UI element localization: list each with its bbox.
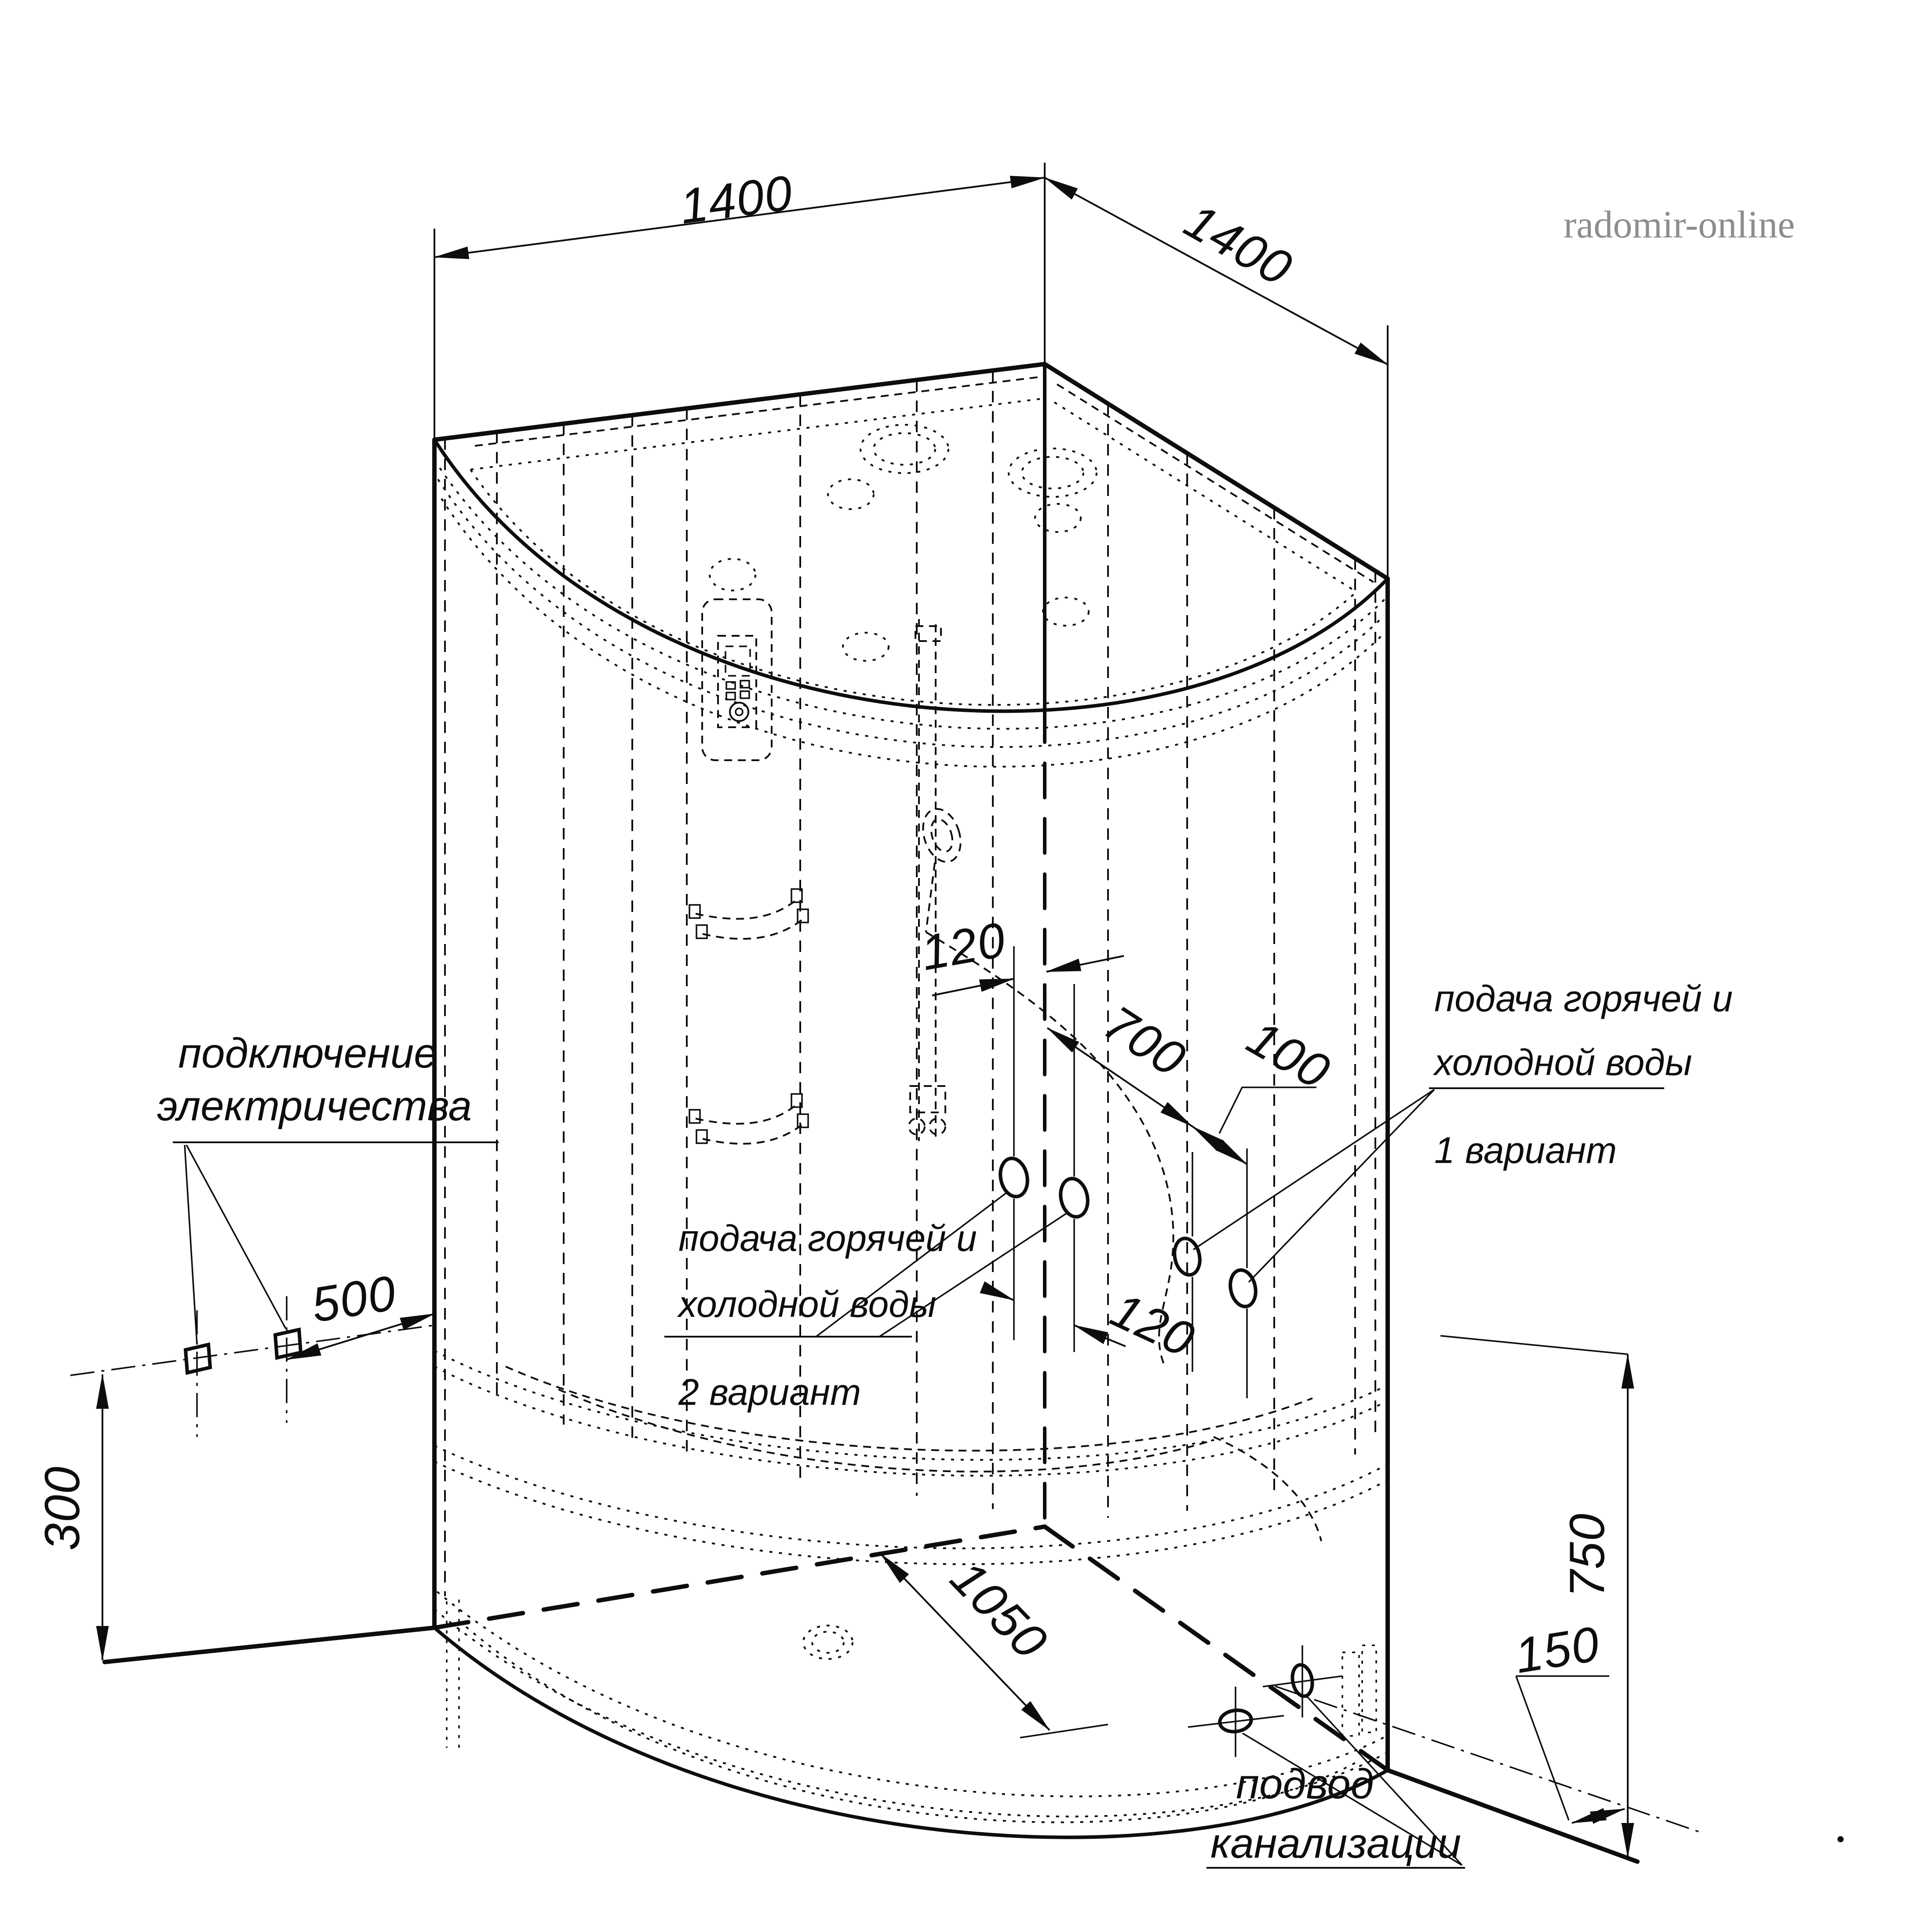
- control-panel-display: [725, 646, 750, 676]
- dimension-top-left-1400: 1400: [434, 165, 1045, 257]
- water2-label-variant: 2 вариант: [678, 1371, 861, 1413]
- dim-text-1050: 1050: [940, 1550, 1058, 1670]
- roof-jets: [710, 425, 1097, 661]
- dim-text-120-lower: 120: [1103, 1282, 1203, 1368]
- water1-point-b: [1227, 1268, 1259, 1309]
- water-supply-option2: 120 120 подача горячей и холодной воды 2…: [664, 912, 1203, 1413]
- water2-label-line2: холодной воды: [677, 1283, 936, 1325]
- stray-dot: [1837, 1836, 1844, 1842]
- panel-joint-lines: [445, 371, 1375, 1596]
- dim-text-500: 500: [308, 1265, 400, 1333]
- water2-point-b: [1057, 1176, 1091, 1220]
- shower-cabin-installation-drawing: 1400 1400 подключение электричества 500 …: [0, 0, 1932, 1932]
- water1-label-line2: холодной воды: [1433, 1042, 1692, 1083]
- electric-connection: подключение электричества 500 300: [35, 1030, 499, 1660]
- water2-label-line1: подача горячей и: [678, 1218, 977, 1259]
- cabin-roof: [434, 398, 1388, 767]
- dimension-1050: 1050: [881, 1550, 1108, 1738]
- water1-label-variant: 1 вариант: [1434, 1130, 1617, 1171]
- towel-rails: [689, 889, 808, 1144]
- control-panel: [702, 599, 772, 760]
- technical-drawing-page: 1400 1400 подключение электричества 500 …: [0, 0, 1932, 1932]
- dim-text-750: 750: [1560, 1513, 1615, 1598]
- watermark-text: radomir-online: [1564, 204, 1795, 246]
- water2-point-a: [997, 1156, 1031, 1199]
- dim-text-150: 150: [1511, 1616, 1604, 1684]
- control-panel-knob: [730, 703, 748, 721]
- dimension-750: 750: [1440, 1336, 1628, 1857]
- electric-box-left: [186, 1345, 210, 1373]
- electric-label-line1: подключение: [178, 1030, 437, 1077]
- dim-text-100: 100: [1238, 1010, 1339, 1100]
- water1-label-line1: подача горячей и: [1434, 978, 1733, 1019]
- dim-text-300: 300: [35, 1466, 90, 1551]
- sewage-label-line2: канализации: [1210, 1820, 1461, 1867]
- floor-line-right-dashed: [1045, 1527, 1388, 1770]
- dimension-150: 150: [1511, 1616, 1625, 1823]
- dim-text-1400-left: 1400: [677, 165, 796, 234]
- dimension-top-right-1400: 1400: [1045, 178, 1388, 365]
- electric-label-line2: электричества: [157, 1083, 472, 1130]
- room-walls: [105, 163, 1637, 1862]
- dim-text-1400-right: 1400: [1176, 193, 1301, 296]
- dim-text-700: 700: [1094, 995, 1196, 1087]
- drain-cover: [803, 1626, 853, 1659]
- mixer-body: [910, 1086, 945, 1112]
- hand-shower-head: [917, 804, 967, 867]
- dim-text-120-upper: 120: [917, 912, 1010, 981]
- sewage-connection: подвод канализации: [1188, 1645, 1699, 1868]
